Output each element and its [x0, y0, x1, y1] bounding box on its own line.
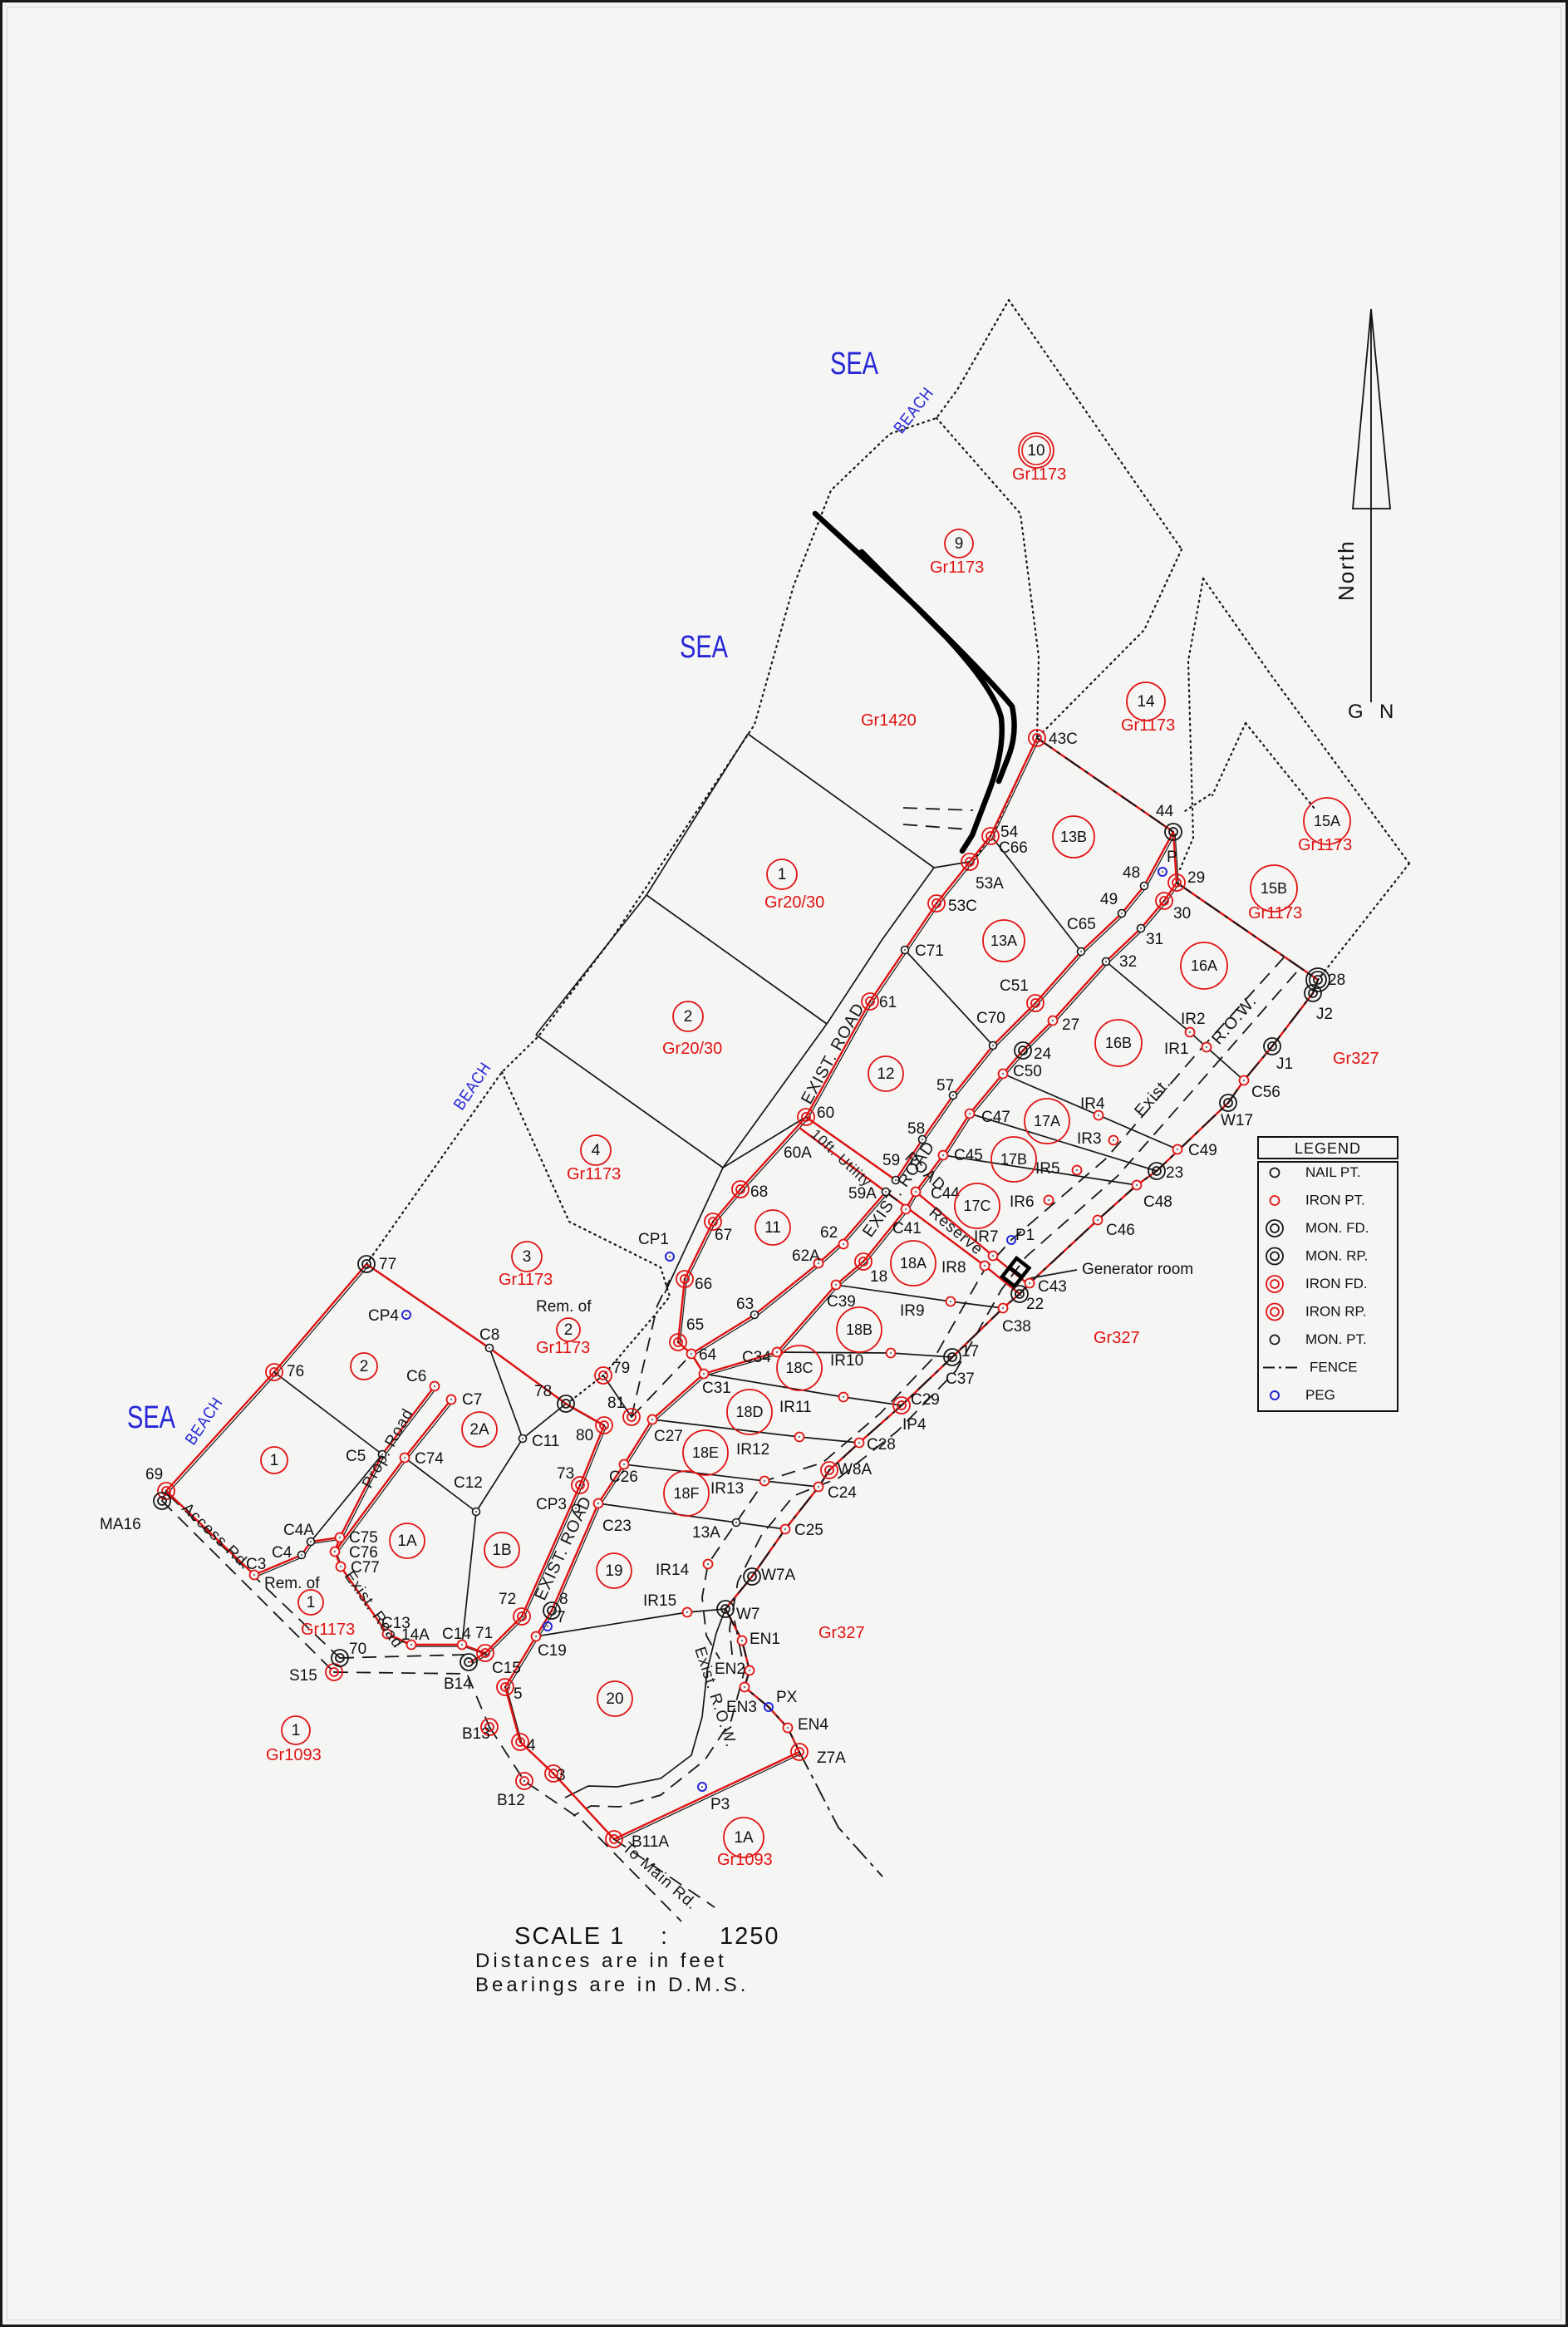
svg-text:1: 1 — [307, 1594, 316, 1611]
svg-text:B14: B14 — [444, 1675, 472, 1693]
svg-text:C11: C11 — [532, 1433, 559, 1450]
svg-text:58: 58 — [907, 1120, 925, 1138]
svg-text:80: 80 — [576, 1427, 593, 1444]
svg-text:G: G — [1348, 701, 1364, 723]
svg-text:J1: J1 — [1276, 1055, 1293, 1073]
svg-text:C12: C12 — [454, 1474, 483, 1492]
svg-text:C50: C50 — [1013, 1063, 1042, 1080]
svg-text:4: 4 — [592, 1142, 601, 1159]
svg-text:C19: C19 — [538, 1642, 567, 1660]
svg-text:IR5: IR5 — [1035, 1160, 1060, 1178]
svg-text:Gr1093: Gr1093 — [266, 1746, 322, 1764]
svg-text:C4: C4 — [272, 1544, 292, 1562]
svg-text:10: 10 — [1027, 442, 1045, 460]
svg-text:2: 2 — [360, 1358, 369, 1375]
svg-text:W17: W17 — [1221, 1112, 1253, 1129]
svg-text:48: 48 — [1123, 864, 1140, 882]
svg-text:EN3: EN3 — [726, 1699, 757, 1716]
svg-text:Gr1173: Gr1173 — [499, 1271, 553, 1289]
svg-text:18F: 18F — [673, 1485, 699, 1502]
svg-text:Gr20/30: Gr20/30 — [662, 1040, 722, 1058]
svg-text:18D: 18D — [735, 1404, 763, 1420]
svg-text:Gr1173: Gr1173 — [930, 558, 984, 577]
svg-text:13A: 13A — [692, 1524, 720, 1542]
svg-text:P3: P3 — [710, 1796, 730, 1813]
svg-text:17: 17 — [961, 1343, 979, 1360]
svg-text:C7: C7 — [462, 1391, 482, 1409]
svg-text:76: 76 — [287, 1363, 304, 1380]
svg-text:C29: C29 — [911, 1391, 940, 1409]
svg-text:IR9: IR9 — [900, 1302, 925, 1320]
svg-text:CP3: CP3 — [536, 1496, 567, 1513]
svg-text:C46: C46 — [1106, 1222, 1135, 1239]
svg-text:31: 31 — [1146, 931, 1163, 948]
svg-text:3: 3 — [523, 1248, 532, 1266]
svg-text:53A: 53A — [976, 875, 1004, 893]
svg-text:81: 81 — [607, 1395, 625, 1412]
svg-text:68: 68 — [750, 1183, 768, 1201]
svg-text:Rem. of: Rem. of — [536, 1298, 592, 1316]
svg-text:65: 65 — [686, 1316, 704, 1334]
svg-text:2: 2 — [564, 1321, 573, 1339]
svg-text:C65: C65 — [1067, 916, 1096, 933]
svg-text:67: 67 — [715, 1227, 732, 1244]
svg-text:P: P — [1167, 849, 1177, 866]
svg-text:18B: 18B — [846, 1321, 872, 1338]
svg-text:MON. RP.: MON. RP. — [1305, 1248, 1368, 1264]
svg-text:60A: 60A — [784, 1144, 812, 1162]
svg-text:C34: C34 — [742, 1349, 771, 1366]
svg-text:C15: C15 — [492, 1660, 521, 1677]
svg-text:30: 30 — [1173, 905, 1191, 922]
svg-text:IR1: IR1 — [1164, 1041, 1189, 1058]
svg-text:1A: 1A — [397, 1532, 417, 1550]
svg-text:IR13: IR13 — [710, 1480, 744, 1498]
svg-text:13A: 13A — [990, 932, 1017, 949]
svg-text:W8A: W8A — [838, 1461, 872, 1478]
svg-text:Gr327: Gr327 — [1094, 1329, 1140, 1347]
svg-text:IR4: IR4 — [1080, 1095, 1105, 1113]
svg-text:32: 32 — [1119, 953, 1137, 971]
svg-text:79: 79 — [612, 1360, 630, 1377]
svg-text:18: 18 — [870, 1268, 887, 1286]
svg-text:IP4: IP4 — [902, 1416, 927, 1434]
svg-text:Gr1173: Gr1173 — [1298, 836, 1352, 854]
svg-text:1: 1 — [778, 866, 787, 883]
svg-text:C28: C28 — [867, 1436, 896, 1454]
svg-text:J2: J2 — [1316, 1006, 1333, 1023]
svg-text:C51: C51 — [1000, 977, 1029, 995]
svg-text:IR15: IR15 — [643, 1592, 676, 1610]
svg-text:IRON RP.: IRON RP. — [1305, 1304, 1366, 1320]
svg-text:Gr1093: Gr1093 — [717, 1851, 773, 1869]
svg-text:MON. PT.: MON. PT. — [1305, 1331, 1367, 1347]
svg-text:Distances are in feet: Distances are in feet — [475, 1950, 727, 1972]
svg-text:C66: C66 — [999, 839, 1028, 857]
svg-text:27: 27 — [1062, 1016, 1079, 1034]
svg-text:24: 24 — [1034, 1045, 1052, 1063]
svg-text:C26: C26 — [609, 1469, 638, 1486]
svg-text:Gr327: Gr327 — [1333, 1050, 1379, 1068]
svg-text:15A: 15A — [1314, 813, 1340, 829]
svg-text:73: 73 — [557, 1465, 574, 1483]
svg-text:EN1: EN1 — [750, 1631, 780, 1648]
svg-text:C4A: C4A — [283, 1522, 314, 1539]
svg-text:P1: P1 — [1015, 1227, 1035, 1244]
svg-text:IRON PT.: IRON PT. — [1305, 1193, 1365, 1208]
svg-text:C24: C24 — [828, 1484, 857, 1502]
svg-text:B13: B13 — [462, 1725, 490, 1743]
svg-text:17A: 17A — [1034, 1113, 1060, 1129]
svg-text:19: 19 — [605, 1562, 622, 1580]
svg-text:C5: C5 — [346, 1448, 366, 1465]
svg-text:63: 63 — [736, 1296, 754, 1313]
svg-text:C49: C49 — [1188, 1142, 1217, 1159]
svg-text:SCALE 1: SCALE 1 — [514, 1923, 625, 1950]
svg-text::: : — [661, 1923, 667, 1950]
svg-text:C38: C38 — [1002, 1318, 1031, 1336]
svg-text:17C: 17C — [963, 1198, 990, 1214]
svg-text:29: 29 — [1187, 869, 1205, 887]
svg-text:11: 11 — [764, 1219, 781, 1237]
svg-text:2: 2 — [684, 1008, 693, 1026]
svg-text:SEA: SEA — [680, 630, 728, 665]
svg-text:LEGEND: LEGEND — [1295, 1140, 1361, 1157]
svg-text:66: 66 — [695, 1276, 712, 1293]
svg-text:17B: 17B — [1000, 1151, 1027, 1168]
svg-text:1: 1 — [292, 1722, 301, 1739]
svg-text:54: 54 — [1000, 824, 1019, 841]
svg-text:23: 23 — [1166, 1164, 1183, 1182]
svg-text:Bearings are in D.M.S.: Bearings are in D.M.S. — [475, 1974, 749, 1996]
svg-text:Gr1173: Gr1173 — [1121, 716, 1175, 735]
svg-text:Gr1173: Gr1173 — [536, 1339, 590, 1357]
svg-text:57: 57 — [936, 1077, 954, 1095]
svg-text:2A: 2A — [469, 1421, 489, 1439]
svg-text:IR3: IR3 — [1077, 1130, 1102, 1148]
svg-text:EN2: EN2 — [715, 1660, 745, 1678]
svg-text:W7: W7 — [736, 1606, 760, 1623]
svg-text:EN4: EN4 — [798, 1716, 828, 1734]
svg-text:C14: C14 — [442, 1626, 471, 1643]
svg-text:1: 1 — [270, 1452, 279, 1469]
svg-text:13B: 13B — [1060, 829, 1087, 845]
svg-text:69: 69 — [145, 1466, 163, 1483]
svg-text:Gr20/30: Gr20/30 — [764, 893, 824, 912]
svg-text:1B: 1B — [492, 1542, 511, 1559]
svg-text:PEG: PEG — [1305, 1387, 1335, 1403]
svg-text:B12: B12 — [497, 1792, 525, 1809]
svg-text:Gr327: Gr327 — [818, 1624, 865, 1642]
svg-text:SEA: SEA — [127, 1400, 175, 1435]
svg-text:FENCE: FENCE — [1310, 1360, 1358, 1375]
svg-text:C31: C31 — [702, 1380, 731, 1397]
svg-text:22: 22 — [1026, 1296, 1044, 1313]
svg-text:C47: C47 — [981, 1109, 1010, 1126]
svg-text:15B: 15B — [1261, 880, 1287, 897]
svg-text:C45: C45 — [954, 1147, 983, 1164]
svg-text:28: 28 — [1328, 972, 1345, 989]
svg-text:S15: S15 — [289, 1667, 317, 1685]
svg-text:Gr1420: Gr1420 — [861, 711, 917, 730]
svg-text:NAIL PT.: NAIL PT. — [1305, 1164, 1360, 1180]
svg-text:CP4: CP4 — [368, 1307, 399, 1325]
svg-text:43C: 43C — [1049, 731, 1078, 748]
svg-text:CP1: CP1 — [638, 1231, 669, 1248]
svg-text:Z7A: Z7A — [817, 1749, 846, 1767]
svg-text:53C: 53C — [948, 898, 977, 915]
svg-text:C6: C6 — [406, 1368, 426, 1385]
svg-text:IR2: IR2 — [1181, 1011, 1206, 1028]
svg-text:C37: C37 — [946, 1370, 975, 1388]
svg-text:59: 59 — [882, 1152, 900, 1169]
svg-text:W7A: W7A — [761, 1567, 796, 1584]
svg-text:North: North — [1334, 539, 1359, 601]
svg-text:C25: C25 — [794, 1522, 823, 1539]
svg-text:78: 78 — [534, 1383, 552, 1400]
svg-text:14: 14 — [1137, 693, 1155, 711]
svg-text:18C: 18C — [785, 1360, 813, 1376]
svg-text:Gr1173: Gr1173 — [567, 1165, 621, 1183]
svg-text:IR12: IR12 — [736, 1441, 769, 1459]
svg-text:C70: C70 — [976, 1010, 1005, 1027]
svg-text:1250: 1250 — [720, 1923, 780, 1950]
svg-text:9: 9 — [955, 535, 964, 553]
svg-text:C8: C8 — [479, 1326, 499, 1344]
svg-text:8: 8 — [559, 1591, 568, 1608]
svg-text:MA16: MA16 — [100, 1516, 141, 1533]
svg-text:7: 7 — [557, 1609, 566, 1626]
svg-text:IR6: IR6 — [1010, 1193, 1035, 1211]
svg-text:IR8: IR8 — [941, 1259, 966, 1277]
svg-text:16A: 16A — [1191, 957, 1217, 974]
svg-text:5: 5 — [514, 1685, 523, 1703]
svg-text:IRON FD.: IRON FD. — [1305, 1276, 1368, 1291]
svg-text:60: 60 — [817, 1104, 834, 1122]
svg-text:70: 70 — [349, 1641, 366, 1658]
svg-text:16B: 16B — [1105, 1035, 1132, 1051]
svg-text:N: N — [1379, 701, 1394, 723]
svg-text:62: 62 — [820, 1224, 838, 1242]
svg-text:Gr1173: Gr1173 — [1248, 904, 1302, 922]
svg-text:C71: C71 — [915, 942, 944, 960]
svg-text:4: 4 — [527, 1737, 536, 1754]
svg-text:IR10: IR10 — [830, 1352, 863, 1370]
svg-text:44: 44 — [1156, 803, 1174, 820]
svg-text:12: 12 — [877, 1065, 894, 1083]
svg-text:C27: C27 — [654, 1428, 683, 1445]
svg-text:3: 3 — [557, 1767, 566, 1784]
svg-text:49: 49 — [1100, 891, 1118, 908]
svg-text:C43: C43 — [1038, 1278, 1067, 1296]
svg-text:IR14: IR14 — [656, 1562, 690, 1579]
svg-text:PX: PX — [776, 1689, 798, 1706]
svg-text:61: 61 — [879, 994, 897, 1011]
svg-text:Gr1173: Gr1173 — [301, 1621, 355, 1639]
svg-text:1A: 1A — [734, 1829, 754, 1847]
svg-text:C48: C48 — [1143, 1193, 1172, 1211]
svg-text:Generator room: Generator room — [1082, 1261, 1193, 1278]
svg-text:62A: 62A — [792, 1247, 820, 1265]
svg-text:72: 72 — [499, 1591, 516, 1608]
svg-text:IR11: IR11 — [779, 1399, 812, 1416]
svg-text:71: 71 — [475, 1625, 493, 1642]
svg-text:C41: C41 — [892, 1220, 922, 1237]
svg-text:SEA: SEA — [830, 347, 878, 381]
svg-text:18E: 18E — [692, 1444, 719, 1461]
svg-text:C56: C56 — [1251, 1084, 1280, 1101]
svg-text:18A: 18A — [900, 1255, 927, 1272]
svg-text:77: 77 — [379, 1256, 396, 1273]
svg-text:64: 64 — [699, 1346, 717, 1364]
svg-text:C23: C23 — [602, 1518, 632, 1535]
svg-text:20: 20 — [606, 1690, 623, 1708]
svg-text:C74: C74 — [415, 1450, 444, 1468]
svg-text:MON. FD.: MON. FD. — [1305, 1220, 1369, 1236]
